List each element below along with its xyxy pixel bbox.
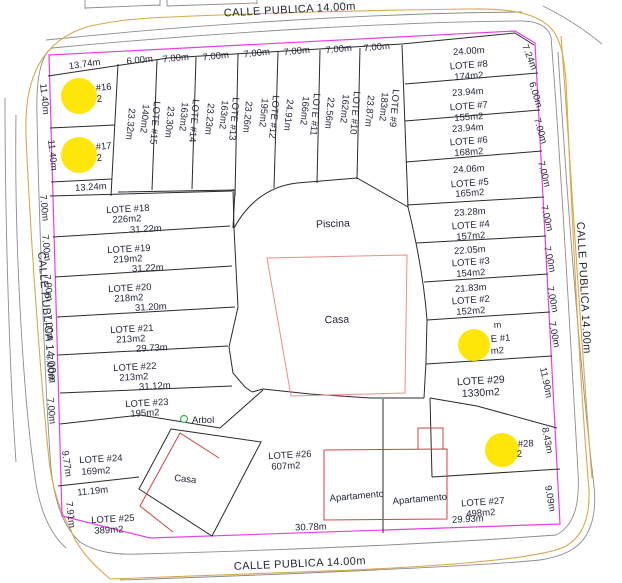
lot20-bottom: 31.20m [135,301,167,314]
lot10-width: 7.00m [325,43,352,57]
lot9-area: 183m2 [376,92,389,122]
lot4-area: 157m2 [456,230,486,243]
house-lower-label: Casa [174,473,198,486]
lot23-side: 7.00m [44,397,58,424]
lot22-bottom: 31.12m [139,380,171,393]
lot9-side: 23.87m [362,95,376,128]
tree-marker-icon [181,416,188,423]
apartment-left-label: Apartamento [329,489,384,505]
lot5-side: 7.00m [535,160,552,188]
lot10-area: 162m2 [337,94,350,124]
lot13-area: 163m2 [216,100,229,130]
lot15-width: 6.00m [126,54,153,68]
lot3-front: 22.05m [454,244,486,257]
lot18-bottom: 31.22m [130,223,162,236]
lot1-front-fragment: m [493,319,501,329]
lot4-side: 7.00m [538,204,555,232]
lot15-area: 140m2 [137,104,150,134]
lot25-side: 7.91m [63,501,77,529]
lot2-front: 21.83m [455,282,487,295]
lot17-bottom-measure: 13.24m [75,181,107,194]
apartment-outline [324,449,447,520]
lot11-width: 7.00m [283,45,310,59]
lot1-label-fragment: E #1 [490,333,510,345]
central-left-edge [229,189,252,392]
lot27-bottom-measure: 29.93m [452,513,484,526]
lot10-side: 22.56m [322,97,336,130]
street-far-edge-left-outer [5,98,16,462]
lot27-side: 9.09m [542,485,557,513]
lot28-side: 8.43m [539,426,555,454]
lot19-bottom: 31.22m [132,262,164,275]
lot1-area-fragment: m2 [490,345,504,357]
pool-label: Piscina [316,217,350,230]
right-lot-labels: 24.00m LOTE #8 174m2 7.24m 23.94m LOTE #… [449,43,561,357]
redaction-circle-lot28 [485,433,519,467]
lot16-side-measure: 11.40m [37,83,51,115]
lot17-side-measure: 11.40m [45,139,59,171]
lot11-side: 24.91m [281,99,295,132]
lot2-area: 152m2 [456,305,486,318]
house-center-label: Casa [324,314,349,327]
feature-labels: Piscina Casa Casa Apartamento Apartament… [174,217,448,507]
lot15-side: 23.32m [123,108,137,141]
lot17-label: #17 [95,141,112,153]
lot12-width: 7.00m [243,47,270,61]
lot6-front: 23.94m [452,122,484,135]
lot3-area: 154m2 [456,267,486,280]
lot7-side: 6.00m [526,81,544,110]
redaction-circle-lot1 [458,329,490,361]
lot24-area: 169m2 [81,465,111,478]
lot18-side: 7.00m [37,194,51,221]
lot5-area: 165m2 [455,187,485,200]
lot6-side: 7.00m [531,117,549,145]
lot3-side: 7.00m [541,245,558,273]
lot9-width: 7.00m [363,41,390,55]
lot17-area-fragment: 2 [96,153,102,164]
apartment-right-label: Apartamento [392,492,447,508]
redaction-circle-lot16 [61,78,97,114]
lot4-front: 23.28m [454,206,486,219]
lot14-width: 7.00m [162,52,189,66]
tree-label: Arbol [192,415,214,426]
lot6-area: 168m2 [454,146,484,159]
lot14-side: 23.30m [162,106,176,139]
street-label-right: CALLE PUBLICA 14.00m [574,222,593,355]
lot2-side: 7.00m [544,285,560,313]
lot25-area: 389m2 [94,524,124,537]
lot8-area: 174m2 [454,70,484,83]
lot28-area-fragment: 2 [517,449,523,460]
buildings [140,255,447,532]
plan-drawing: CALLE PUBLICA 14.00m CALLE PUBLICA 14.00… [0,0,622,583]
lot12-side: 23.26m [240,101,254,134]
lot24-bottom: 11.19m [77,484,109,498]
lot13-width: 7.00m [202,50,229,64]
lot13-side: 23.23m [202,103,216,136]
lot21-bottom: 29.73m [136,342,168,355]
lot26-bottom: 30.78m [295,521,327,533]
lot11-area: 166m2 [297,96,310,126]
lot8-front: 24.00m [453,45,485,58]
lot7-front: 23.94m [452,86,484,99]
street-corner-top-right [543,6,602,44]
lot16-top-measure: 13.74m [68,57,101,72]
lot29-area: 1330m2 [462,386,501,400]
lot5-front: 24.06m [453,163,485,176]
pool-parcel-outline [234,178,427,398]
street-far-edge-left [16,115,66,548]
lot1-side: 7.00m [546,320,562,348]
lot22-side: 7.00m [43,354,57,381]
lot16-area-fragment: 2 [96,94,102,105]
lot26-area: 607m2 [271,460,301,473]
lot16-label: #16 [95,82,112,94]
redaction-circle-lot17 [61,137,97,173]
lot12-area: 195m2 [256,98,269,128]
lot23-area: 195m2 [130,407,160,420]
cadastral-plan: CALLE PUBLICA 14.00m CALLE PUBLICA 14.00… [0,0,622,583]
lot14-area: 163m2 [176,102,189,132]
lot24-label: LOTE #24 [79,453,123,466]
